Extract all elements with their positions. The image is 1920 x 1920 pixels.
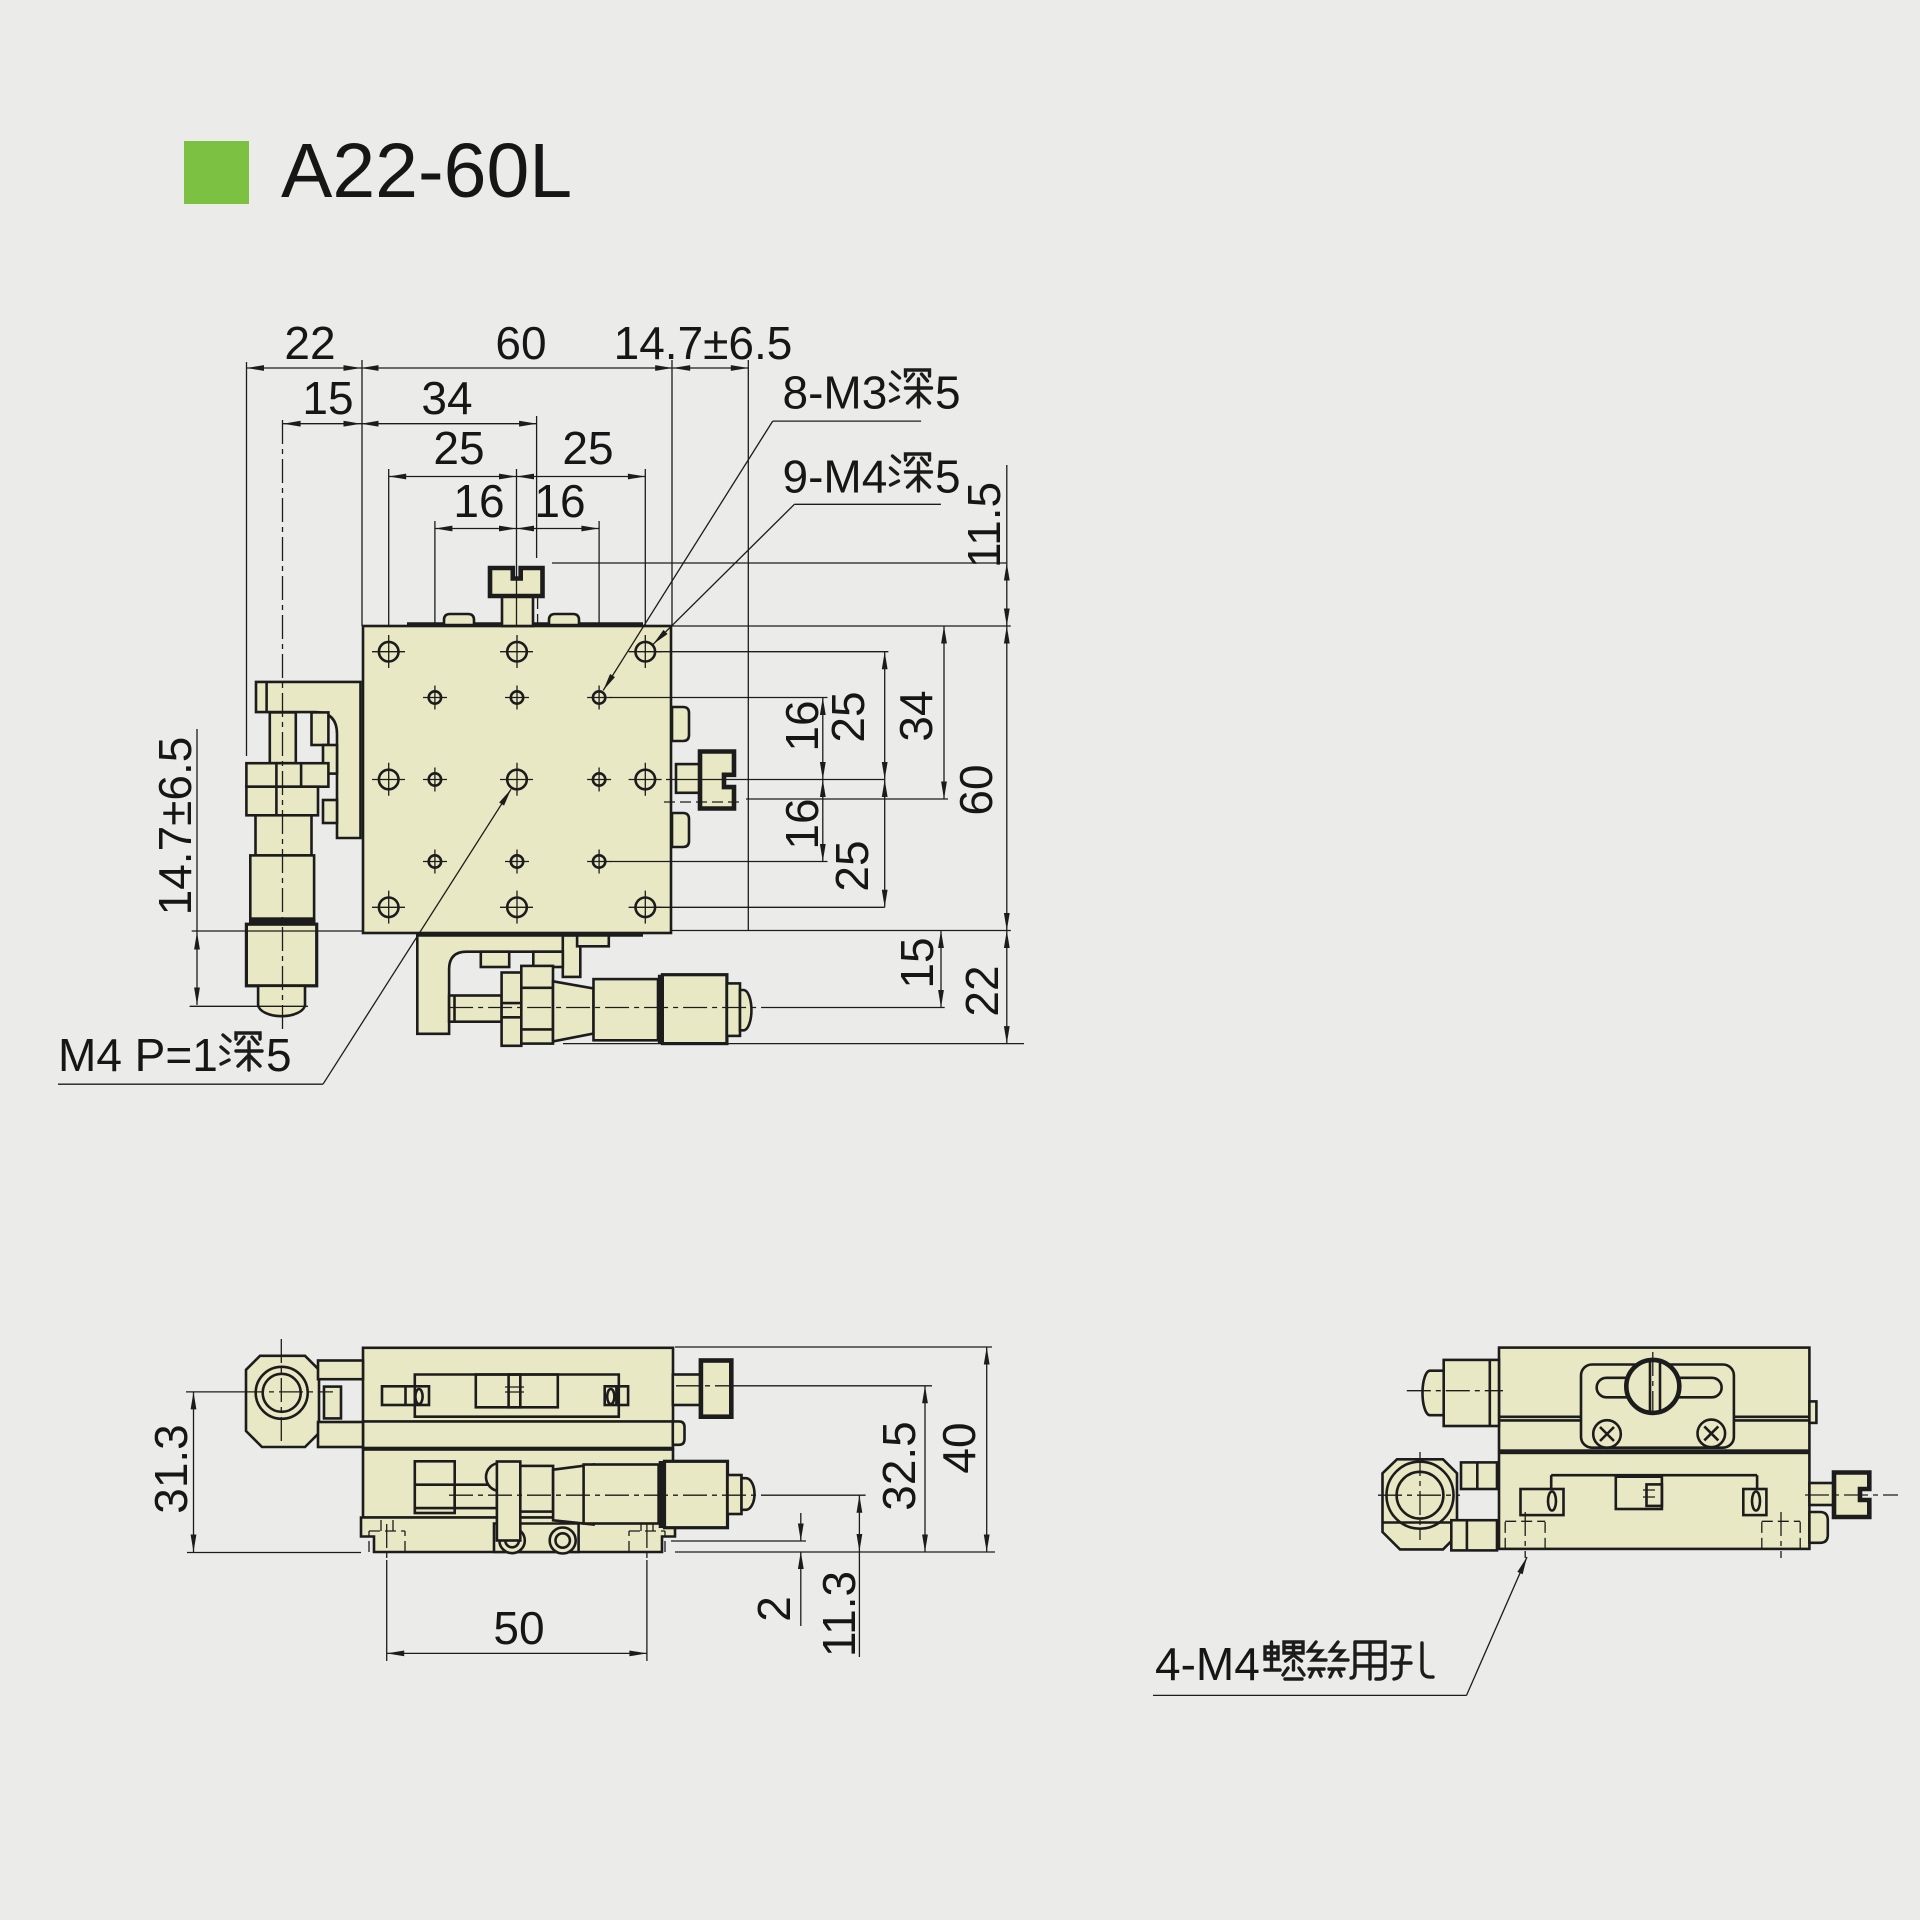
svg-text:11.5: 11.5 <box>958 482 1010 568</box>
svg-text:5: 5 <box>935 450 961 502</box>
svg-text:2: 2 <box>748 1596 800 1622</box>
svg-text:16: 16 <box>453 475 504 527</box>
svg-text:15: 15 <box>891 937 943 988</box>
svg-text:8-M3: 8-M3 <box>783 366 888 418</box>
svg-text:25: 25 <box>433 422 484 474</box>
svg-text:34: 34 <box>421 372 472 424</box>
svg-text:16: 16 <box>776 700 828 751</box>
svg-text:A22-60L: A22-60L <box>281 128 572 214</box>
svg-text:M4 P=1: M4 P=1 <box>58 1029 218 1081</box>
svg-text:5: 5 <box>266 1029 292 1081</box>
svg-text:40: 40 <box>933 1422 985 1473</box>
svg-text:9-M4: 9-M4 <box>783 450 888 502</box>
svg-text:25: 25 <box>822 691 874 742</box>
svg-text:22: 22 <box>284 317 335 369</box>
svg-text:16: 16 <box>534 475 585 527</box>
svg-text:60: 60 <box>495 317 546 369</box>
svg-text:25: 25 <box>562 422 613 474</box>
svg-text:4-M4: 4-M4 <box>1155 1638 1260 1690</box>
svg-text:22: 22 <box>956 965 1008 1016</box>
svg-text:16: 16 <box>776 798 828 849</box>
svg-text:14.7±6.5: 14.7±6.5 <box>149 737 201 916</box>
svg-text:25: 25 <box>826 840 878 891</box>
svg-text:15: 15 <box>302 372 353 424</box>
svg-text:32.5: 32.5 <box>873 1421 925 1511</box>
svg-text:34: 34 <box>890 690 942 741</box>
svg-text:60: 60 <box>950 764 1002 815</box>
svg-text:31.3: 31.3 <box>145 1424 197 1514</box>
svg-text:5: 5 <box>935 366 961 418</box>
svg-text:11.3: 11.3 <box>813 1571 865 1657</box>
svg-text:14.7±6.5: 14.7±6.5 <box>614 317 793 369</box>
svg-text:50: 50 <box>493 1602 544 1654</box>
